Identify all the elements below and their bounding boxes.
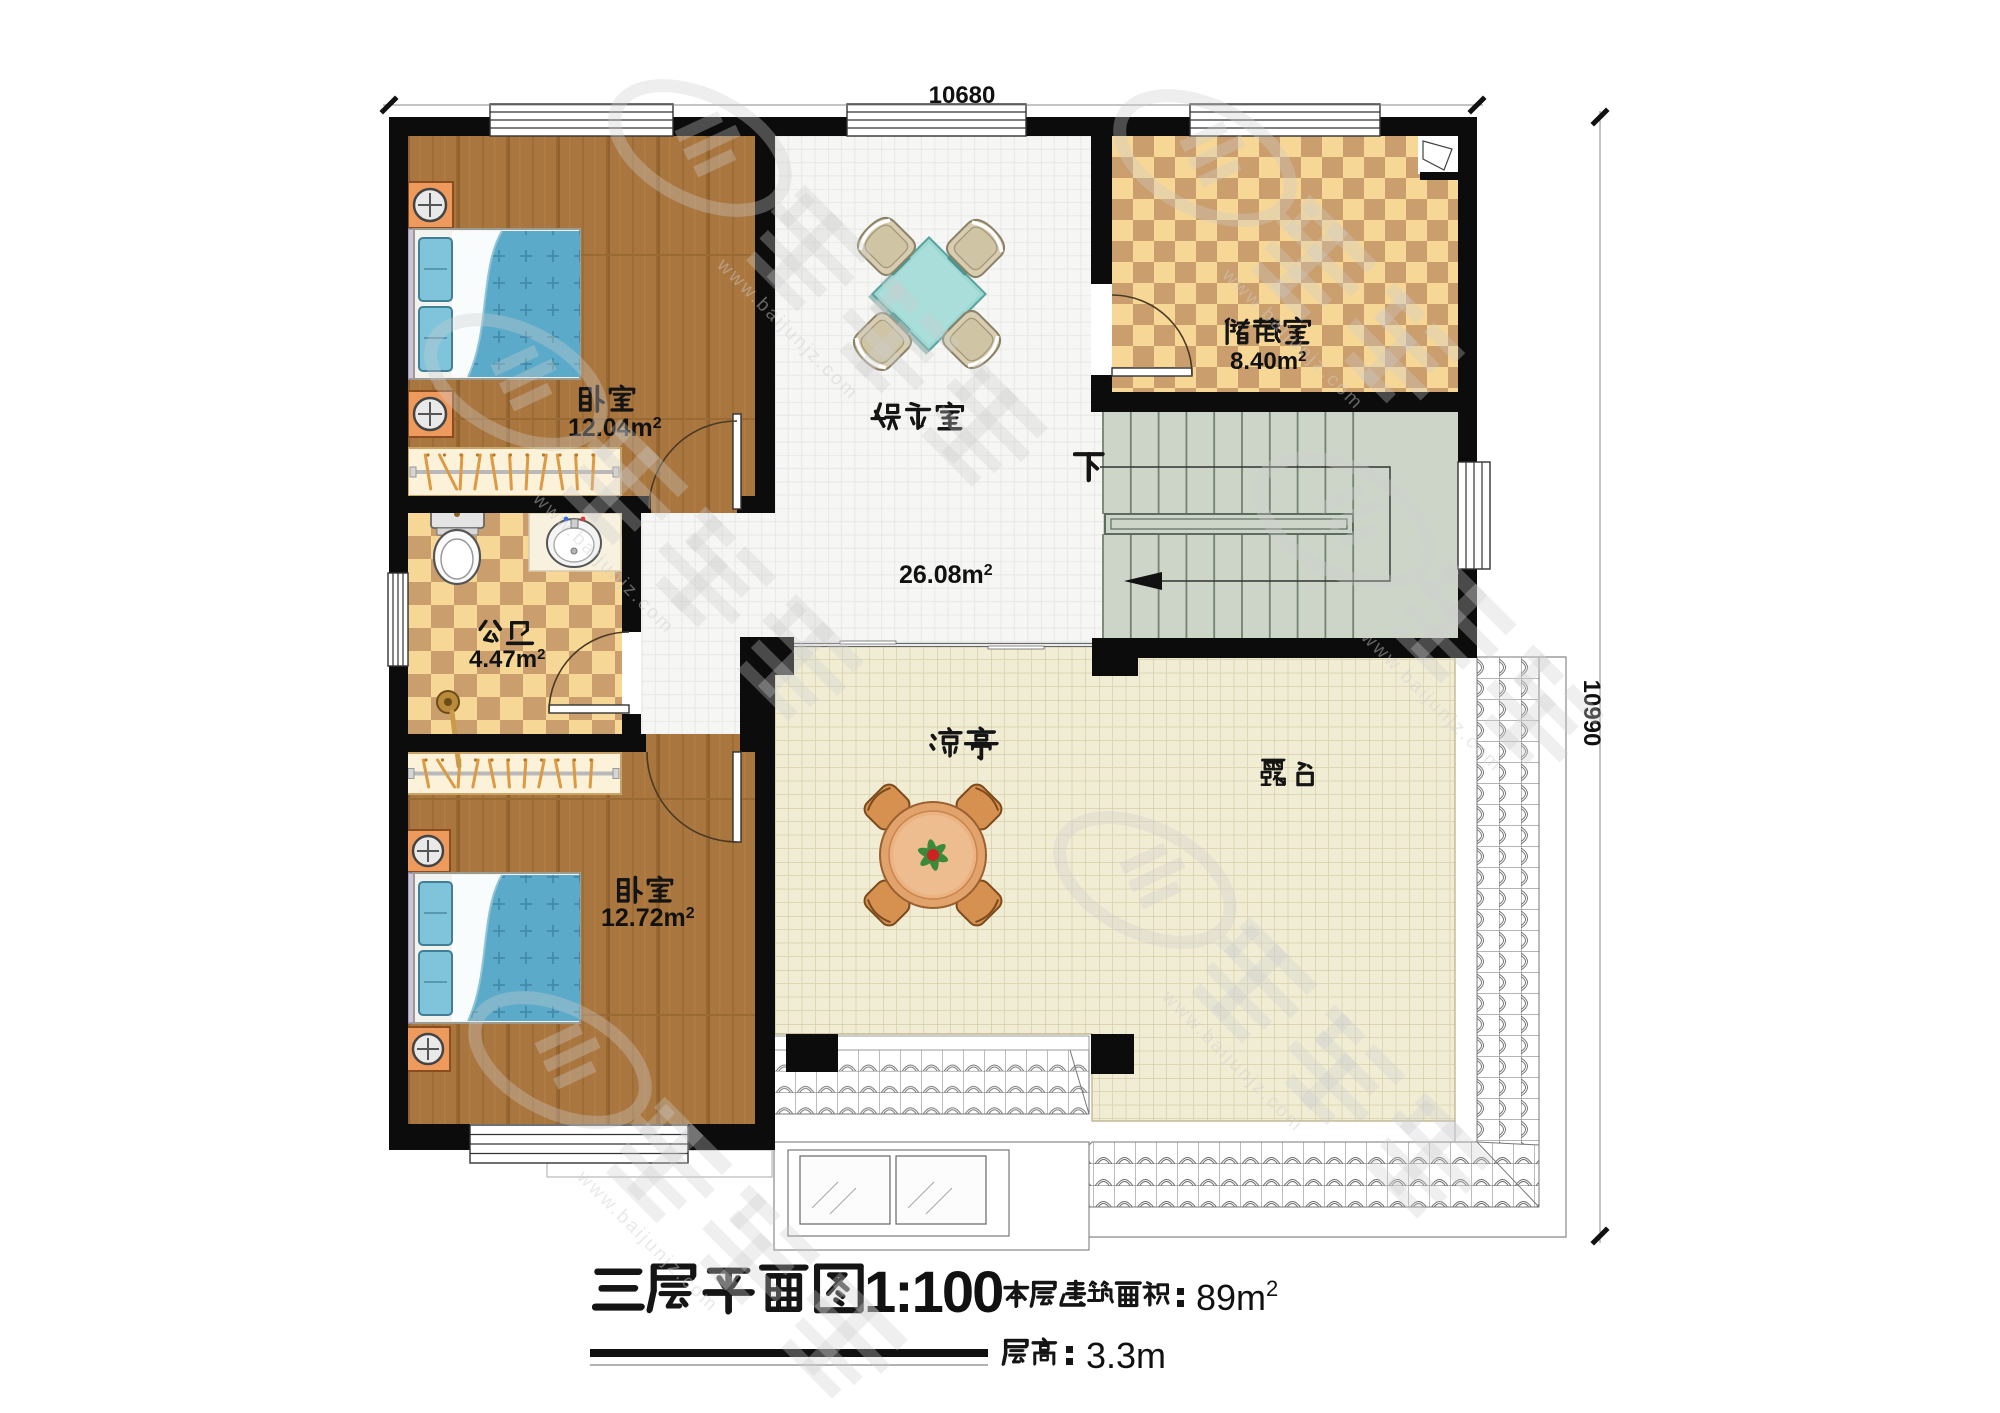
svg-text:10680: 10680: [929, 82, 996, 109]
svg-text:3.3m: 3.3m: [1086, 1335, 1166, 1376]
svg-text:4.47m2: 4.47m2: [469, 646, 545, 673]
svg-text:1:100: 1:100: [864, 1260, 1002, 1325]
svg-text:89m2: 89m2: [1196, 1276, 1278, 1318]
svg-text:26.08m2: 26.08m2: [899, 561, 993, 589]
svg-text:12.72m2: 12.72m2: [601, 904, 695, 932]
